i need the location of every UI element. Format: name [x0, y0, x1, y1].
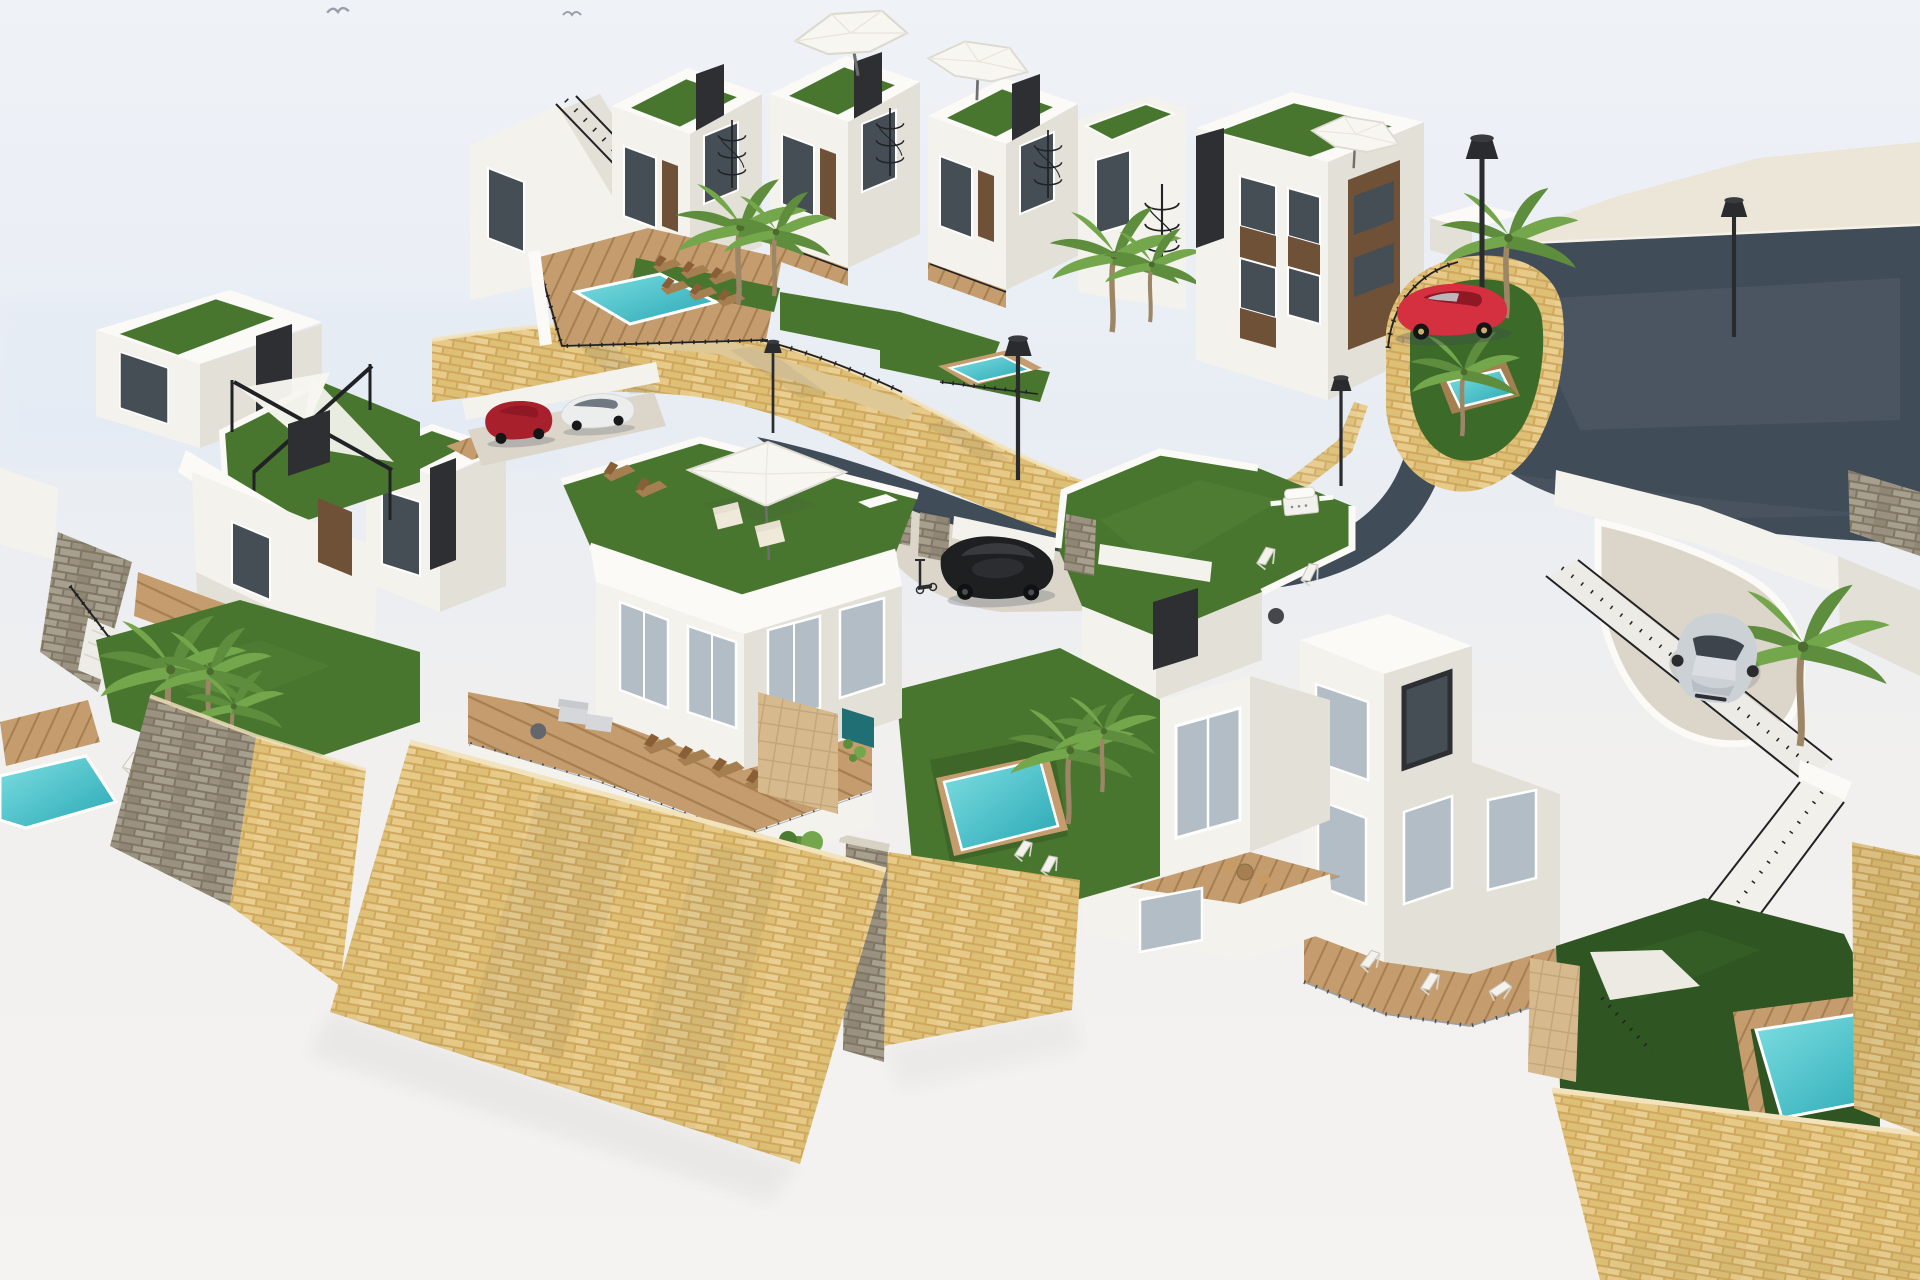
render-viewport — [0, 0, 1920, 1280]
architectural-render — [0, 0, 1920, 1280]
